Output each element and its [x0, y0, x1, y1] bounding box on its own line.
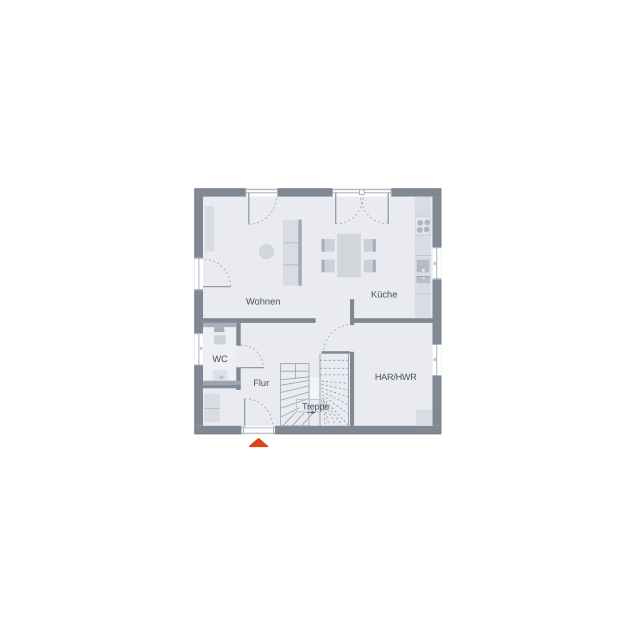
svg-text:HAR/HWR: HAR/HWR — [375, 372, 417, 382]
svg-text:Küche: Küche — [371, 289, 397, 299]
svg-text:Treppe: Treppe — [302, 401, 329, 411]
svg-text:Flur: Flur — [253, 378, 269, 388]
svg-text:Wohnen: Wohnen — [246, 297, 280, 307]
svg-text:WC: WC — [212, 354, 228, 364]
